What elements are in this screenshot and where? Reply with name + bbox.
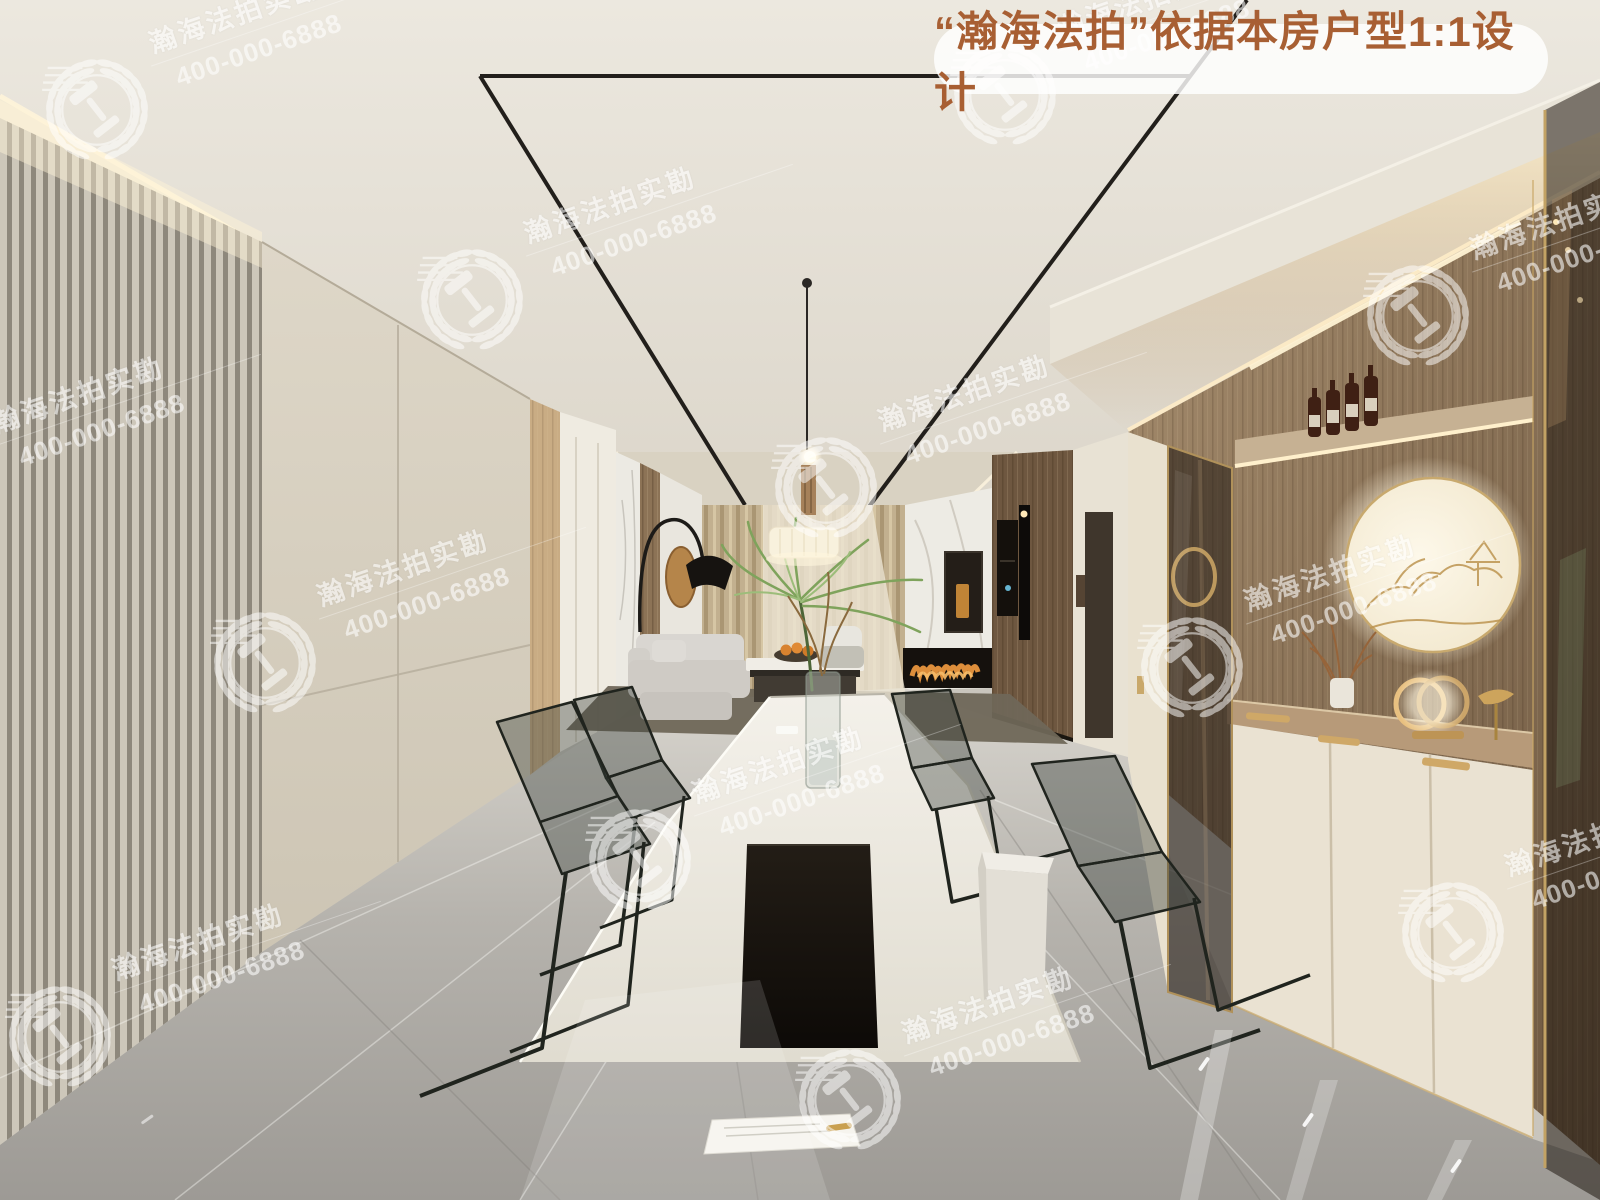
room-render: [0, 0, 1600, 1200]
cube-stool: [978, 852, 1054, 1006]
table-tray: [776, 726, 798, 734]
sofa: [628, 634, 750, 720]
wall-light-bar: [1019, 505, 1030, 640]
hallway-opening: [1073, 432, 1128, 758]
fireplace: [903, 648, 992, 688]
design-banner: “瀚海法拍”依据本房户型1:1设计: [934, 24, 1548, 94]
white-vase: [1330, 678, 1354, 708]
round-backlit-art: [1323, 457, 1533, 667]
interior-photo: { "banner": { "text": "“瀚海法拍”依据本房户型1:1设计…: [0, 0, 1600, 1200]
design-banner-text: “瀚海法拍”依据本房户型1:1设计: [934, 0, 1548, 120]
